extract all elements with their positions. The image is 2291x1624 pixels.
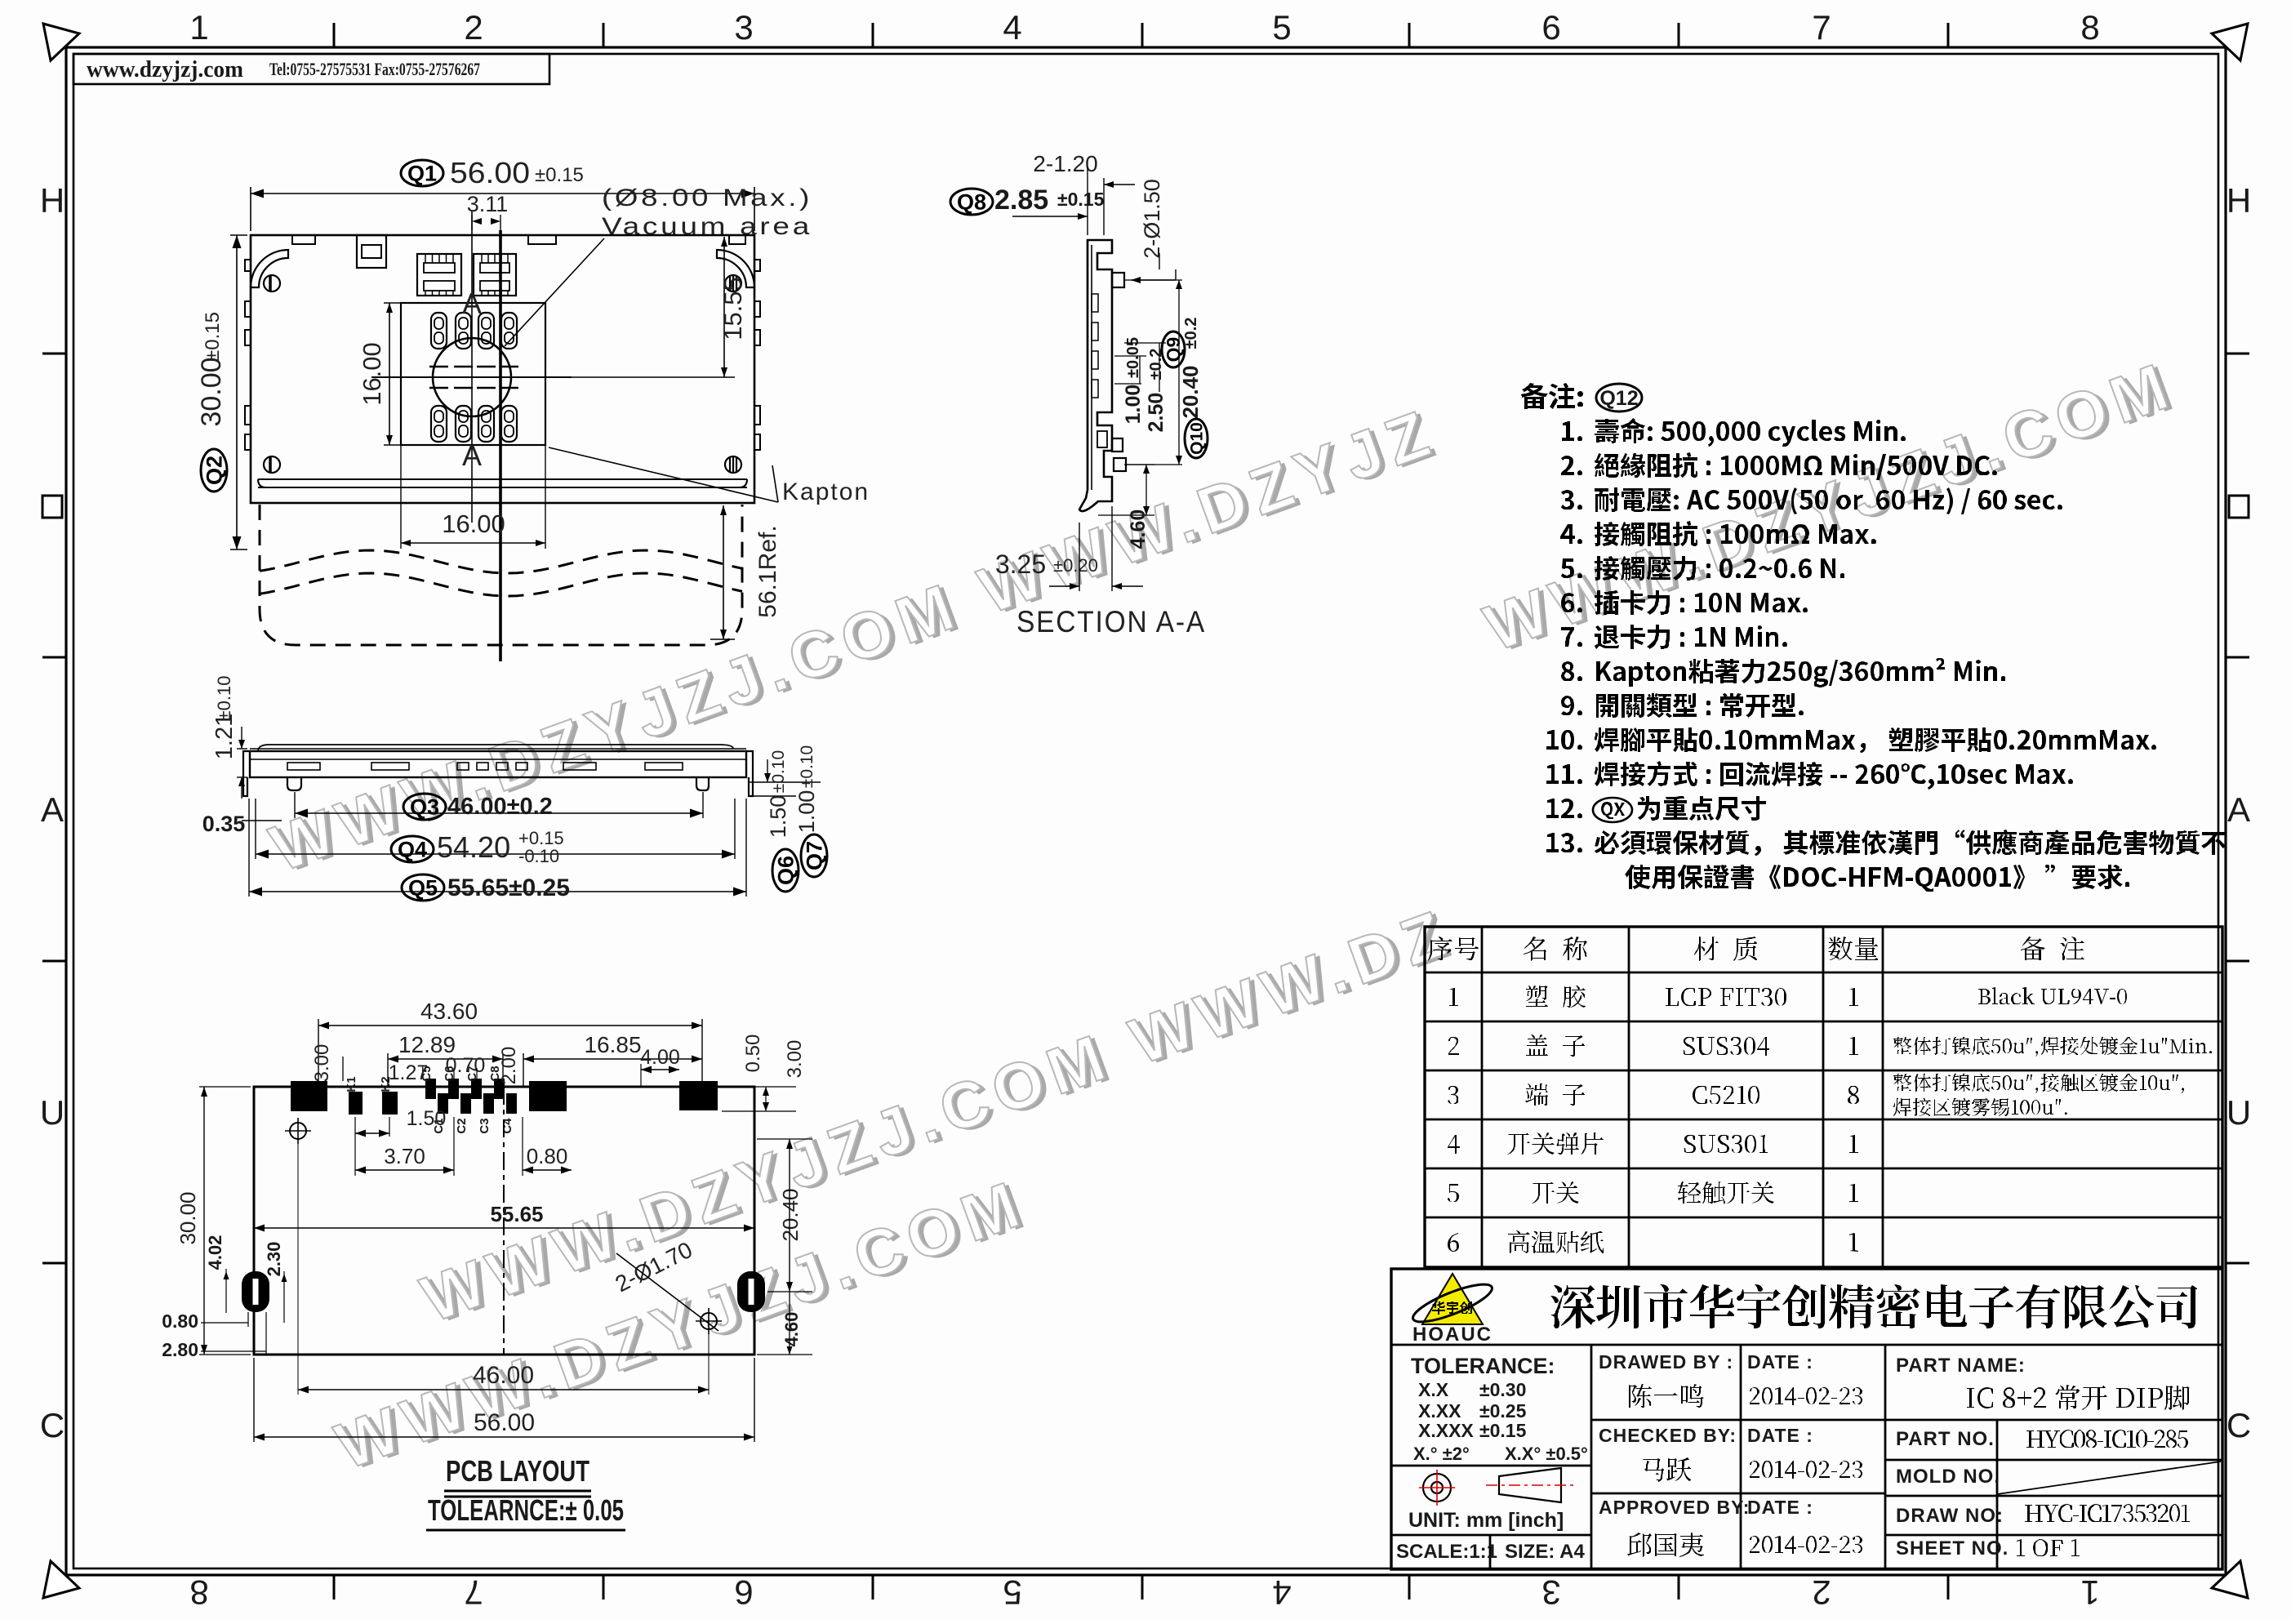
- svg-text:TOLERANCE:: TOLERANCE:: [1411, 1354, 1555, 1378]
- svg-text:2-Ø1.50: 2-Ø1.50: [1140, 179, 1164, 259]
- svg-text:3.00: 3.00: [784, 1040, 806, 1079]
- svg-text:2: 2: [1812, 1573, 1831, 1612]
- svg-text:PCB LAYOUT: PCB LAYOUT: [446, 1454, 589, 1488]
- svg-text:2.30: 2.30: [264, 1242, 284, 1277]
- svg-text:X.° ±2°: X.° ±2°: [1413, 1444, 1470, 1464]
- svg-text:C2: C2: [455, 1118, 469, 1133]
- svg-text:2.50: 2.50: [1145, 393, 1168, 433]
- svg-text:1.50: 1.50: [407, 1107, 447, 1130]
- svg-text:±0.15: ±0.15: [202, 312, 224, 361]
- svg-text:55.65: 55.65: [490, 1202, 543, 1226]
- svg-text:PART NO.: PART NO.: [1896, 1428, 1995, 1450]
- svg-text:SCALE:1:1: SCALE:1:1: [1396, 1541, 1497, 1563]
- svg-text:HOAUC: HOAUC: [1412, 1324, 1492, 1346]
- svg-text:1.00: 1.00: [794, 790, 819, 834]
- svg-text:3.11: 3.11: [467, 192, 509, 216]
- svg-text:X.X: X.X: [1418, 1379, 1449, 1400]
- svg-text:56.00: 56.00: [450, 156, 530, 189]
- svg-text:46.00: 46.00: [473, 1362, 534, 1389]
- svg-text:C: C: [2226, 1406, 2251, 1444]
- svg-text:Q1: Q1: [407, 161, 437, 185]
- svg-text:4: 4: [1272, 1573, 1291, 1612]
- svg-text:C: C: [40, 1406, 65, 1444]
- svg-text:DATE :: DATE :: [1747, 1425, 1813, 1446]
- svg-text:Q6: Q6: [773, 856, 798, 885]
- svg-text:±0.15: ±0.15: [1479, 1420, 1527, 1441]
- svg-text:1.27: 1.27: [389, 1061, 429, 1084]
- svg-text:PART NAME:: PART NAME:: [1896, 1355, 2026, 1377]
- svg-text:U: U: [40, 1093, 65, 1132]
- svg-text:Q8: Q8: [957, 189, 986, 214]
- svg-text:1: 1: [189, 8, 208, 47]
- svg-text:(Ø8.00 Max.): (Ø8.00 Max.): [602, 185, 812, 211]
- svg-text:0.80: 0.80: [527, 1144, 568, 1168]
- svg-text:3: 3: [1541, 1573, 1560, 1612]
- svg-text:3.70: 3.70: [384, 1144, 425, 1168]
- svg-text:1: 1: [2080, 1573, 2099, 1612]
- svg-text:7: 7: [464, 1573, 483, 1612]
- svg-text:A: A: [41, 790, 64, 829]
- svg-text:SECTION A-A: SECTION A-A: [1016, 605, 1206, 638]
- svg-text:±0.25: ±0.25: [1479, 1400, 1527, 1422]
- svg-text:0.35: 0.35: [202, 812, 246, 836]
- svg-text:4: 4: [1003, 8, 1021, 47]
- svg-text:Q9: Q9: [1163, 337, 1184, 363]
- svg-text:H: H: [2226, 181, 2251, 220]
- svg-text:www.dzyjzj.com: www.dzyjzj.com: [87, 56, 243, 82]
- svg-text:±0.20: ±0.20: [1053, 555, 1098, 576]
- svg-text:56.1Ref.: 56.1Ref.: [754, 525, 781, 617]
- svg-text:X.X° ±0.5°: X.X° ±0.5°: [1505, 1444, 1588, 1464]
- svg-text:46.00±0.2: 46.00±0.2: [447, 794, 553, 820]
- svg-text:3.25: 3.25: [995, 549, 1046, 579]
- svg-text:5: 5: [1003, 1573, 1021, 1612]
- svg-text:Q5: Q5: [408, 875, 438, 900]
- svg-text:3.00: 3.00: [311, 1044, 333, 1083]
- svg-text:X.XX: X.XX: [1418, 1400, 1461, 1422]
- svg-text:3: 3: [734, 8, 753, 47]
- svg-text:16.00: 16.00: [442, 509, 505, 538]
- svg-text:20.40: 20.40: [778, 1188, 803, 1241]
- svg-text:2-1.20: 2-1.20: [1033, 151, 1097, 176]
- svg-text:0.50: 0.50: [742, 1034, 764, 1073]
- svg-text:SHEET NO.: SHEET NO.: [1896, 1537, 2009, 1559]
- svg-text:SIZE: A4: SIZE: A4: [1505, 1541, 1585, 1563]
- svg-text:56.00: 56.00: [474, 1409, 535, 1436]
- svg-text:4.02: 4.02: [205, 1235, 225, 1270]
- svg-text:A: A: [462, 438, 482, 472]
- svg-text:Q10: Q10: [1187, 422, 1206, 455]
- svg-text:2.85: 2.85: [994, 185, 1048, 216]
- svg-text:Q4: Q4: [398, 837, 427, 861]
- svg-text:20.40: 20.40: [1178, 365, 1203, 418]
- svg-text:16.00: 16.00: [358, 342, 386, 406]
- svg-text:Vacuum area: Vacuum area: [602, 213, 812, 240]
- svg-text:4.00: 4.00: [640, 1046, 680, 1069]
- svg-text:Q7: Q7: [802, 841, 826, 870]
- svg-text:54.20: 54.20: [437, 830, 510, 864]
- svg-text:1.50: 1.50: [766, 795, 790, 839]
- svg-text:DRAW NO:: DRAW NO:: [1896, 1505, 2004, 1527]
- svg-text:6: 6: [734, 1573, 753, 1612]
- svg-text:DATE :: DATE :: [1747, 1351, 1813, 1373]
- svg-text:C3: C3: [478, 1118, 492, 1133]
- svg-text:APPROVED BY:: APPROVED BY:: [1599, 1497, 1750, 1518]
- svg-text:K1: K1: [345, 1076, 358, 1092]
- svg-text:4.60: 4.60: [1127, 509, 1150, 549]
- svg-text:5: 5: [1272, 8, 1291, 47]
- svg-text:2: 2: [464, 8, 483, 47]
- svg-text:55.65±0.25: 55.65±0.25: [447, 874, 570, 901]
- svg-text:U: U: [2226, 1093, 2251, 1132]
- svg-text:30.00: 30.00: [176, 1191, 200, 1244]
- svg-text:H: H: [40, 181, 65, 220]
- svg-text:±0.10: ±0.10: [798, 745, 816, 788]
- svg-text:X.XXX: X.XXX: [1418, 1420, 1474, 1441]
- svg-text:TOLEARNCE:± 0.05: TOLEARNCE:± 0.05: [428, 1493, 624, 1527]
- svg-text:15.55: 15.55: [718, 277, 747, 340]
- svg-text:-0.10: -0.10: [518, 846, 559, 866]
- svg-text:8: 8: [189, 1573, 208, 1612]
- svg-text:±0.10: ±0.10: [769, 750, 788, 793]
- svg-text:16.85: 16.85: [584, 1032, 641, 1057]
- svg-text:0.80: 0.80: [162, 1310, 198, 1332]
- svg-text:43.60: 43.60: [420, 999, 478, 1024]
- svg-text:±0.30: ±0.30: [1479, 1379, 1526, 1400]
- svg-text:CHECKED BY:: CHECKED BY:: [1599, 1425, 1737, 1446]
- svg-text:±0.15: ±0.15: [535, 164, 584, 186]
- svg-text:0.70: 0.70: [446, 1054, 486, 1077]
- svg-text:1.00: 1.00: [1122, 385, 1145, 425]
- svg-text:2.00: 2.00: [498, 1047, 520, 1085]
- svg-text:30.00: 30.00: [196, 357, 227, 426]
- svg-text:Q3: Q3: [410, 794, 439, 819]
- svg-text:A: A: [2227, 790, 2250, 829]
- svg-text:DRAWED BY :: DRAWED BY :: [1599, 1351, 1733, 1373]
- svg-text:Kapton: Kapton: [782, 478, 870, 505]
- svg-text:±0.15: ±0.15: [1057, 189, 1105, 210]
- svg-text:Q2: Q2: [202, 456, 226, 485]
- svg-text:8: 8: [2080, 8, 2099, 47]
- svg-text:UNIT: mm [inch]: UNIT: mm [inch]: [1408, 1509, 1564, 1532]
- svg-text:Q12: Q12: [1599, 387, 1638, 410]
- svg-text:Tel:0755-27575531 Fax:0755-27: Tel:0755-27575531 Fax:0755-27576267: [269, 59, 480, 79]
- svg-text:A: A: [462, 287, 482, 320]
- svg-text:6: 6: [1541, 8, 1560, 47]
- svg-text:±0.2: ±0.2: [1182, 318, 1200, 349]
- svg-text:C4: C4: [500, 1118, 514, 1134]
- svg-text:±0.10: ±0.10: [214, 676, 234, 721]
- svg-text:DATE :: DATE :: [1747, 1497, 1813, 1518]
- svg-text:2.80: 2.80: [162, 1339, 198, 1360]
- svg-text:7: 7: [1812, 8, 1831, 47]
- svg-text:MOLD NO.: MOLD NO.: [1896, 1466, 2000, 1488]
- svg-text:4.60: 4.60: [781, 1312, 802, 1347]
